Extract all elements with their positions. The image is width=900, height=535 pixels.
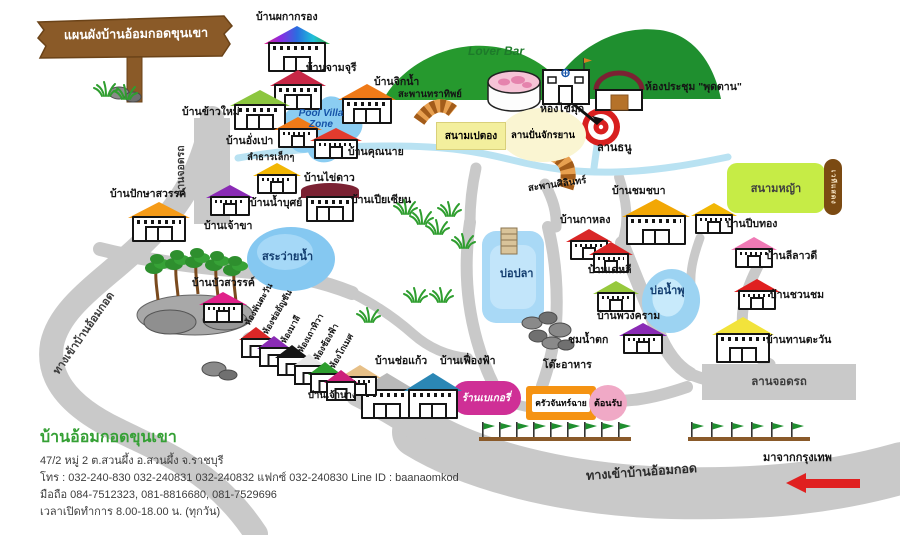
label-phakakrong: บ้านผกากรอง — [256, 12, 318, 24]
label-khunnai: บ้านคุณนาย — [348, 147, 404, 159]
reception-area: ต้อนรับ — [589, 385, 627, 421]
house-body — [203, 303, 243, 323]
label-piasian: บ้านเปียเซียน — [351, 195, 411, 207]
label-angpao: บ้านอั่งเปา — [226, 136, 273, 148]
house-body — [408, 389, 458, 419]
house-piasian — [308, 183, 352, 222]
resort-address: 47/2 หมู่ 2 ต.สวนผึ้ง อ.สวนผึ้ง จ.ราชบุร… — [40, 453, 459, 470]
label-leelawadee: บ้านลีลาวดี — [766, 251, 817, 263]
bakery-shop: ร้านเบเกอรี่ — [451, 381, 521, 415]
label-kalong: บ้านกาหลง — [560, 215, 610, 227]
spa-tub-icon — [488, 71, 540, 111]
house-buasawan — [205, 292, 241, 323]
label-archery: ลานธนู — [597, 142, 632, 154]
label-petanque: สนามเปตอง — [445, 129, 497, 144]
label-kitchen: ครัวจันทร์ฉาย — [532, 394, 590, 412]
parking-lot-right: ลานจอดรถ — [702, 364, 856, 400]
label-chomchaba: บ้านชมชบา — [612, 186, 665, 198]
label-paksasawan: บ้านปักษาสวรรค์ — [110, 189, 186, 201]
label-lover-bar: Lover Bar — [468, 44, 524, 58]
bike-area: ลานปั่นจักรยาน — [500, 108, 586, 162]
stage-area: เวทีแสดง — [824, 159, 842, 215]
label-parking-right: ลานจอดรถ — [751, 373, 807, 391]
house-body — [626, 215, 686, 245]
label-parking-left: ลานจอดรถ — [176, 121, 188, 221]
label-bridge-north: สะพานทราทิพย์ — [398, 90, 462, 100]
contact-info: บ้านอ้อมกอดขุนเขา 47/2 หมู่ 2 ต.สวนผึ้ง … — [40, 426, 459, 521]
house-body — [623, 334, 663, 354]
label-peebthong: บ้านปีบทอง — [726, 219, 777, 231]
resort-phone: โทร : 032-240-830 032-240831 032-240832 … — [40, 470, 459, 487]
house-body — [597, 292, 635, 312]
label-pool-villa-zone: Pool Villa Zone — [288, 108, 354, 130]
house-jaokha — [212, 185, 248, 216]
label-bike-area: ลานปั่นจักรยาน — [511, 128, 575, 143]
label-fuangfa: บ้านเฟื่องฟ้า — [440, 356, 496, 368]
house-chomchaba — [628, 199, 684, 245]
label-jaokha: บ้านเจ้าขา — [204, 221, 252, 233]
label-jaonang: บ้านเจ้านาง — [308, 391, 356, 401]
label-chokaew: บ้านช่อแก้ว — [375, 356, 427, 368]
house-body — [716, 333, 770, 363]
house-reception — [625, 323, 661, 354]
label-puangkram: บ้านพวงคราม — [597, 311, 660, 323]
flags-row-icon — [479, 422, 810, 441]
label-lawn: สนามหญ้า — [751, 179, 801, 197]
label-bakery: ร้านเบเกอรี่ — [462, 391, 510, 406]
map-title-sign: แผนผังบ้านอ้อมกอดขุนเขา — [48, 22, 224, 45]
pearl-room-building — [543, 58, 592, 104]
resort-mobile: มือถือ 084-7512323, 081-8816680, 081-752… — [40, 487, 459, 504]
house-body — [234, 104, 286, 130]
label-chuanchom: บ้านชวนชม — [770, 290, 824, 302]
lawn-area: สนามหญ้า — [727, 163, 825, 213]
label-khaomai: บ้านข้าวใหม่ — [182, 107, 240, 119]
resort-name: บ้านอ้อมกอดขุนเขา — [40, 426, 459, 451]
label-khaidao: บ้านไข่ดาว — [304, 173, 355, 185]
house-khaidao — [259, 163, 295, 194]
label-waterfall-view: ชมน้ำตก — [568, 335, 608, 347]
house-body — [306, 196, 354, 222]
label-meeting-room: ห้องประชุม "พุดตาน" — [645, 82, 742, 94]
label-stage: เวทีแสดง — [828, 170, 839, 205]
house-body — [210, 196, 250, 216]
label-jamjuri: บ้านจามจุรี — [306, 63, 357, 75]
label-from-bangkok: มาจากกรุงเทพ — [763, 452, 832, 464]
label-dining-tables: โต๊ะอาหาร — [543, 360, 592, 372]
label-reception: ต้อนรับ — [594, 396, 622, 410]
resort-hours: เวลาเปิดทำการ 8.00-18.00 น. (ทุกวัน) — [40, 504, 459, 521]
label-fountain-pond: บ่อน้ำพุ — [650, 285, 685, 297]
house-body — [257, 174, 297, 194]
house-body — [278, 128, 318, 148]
house-puangkram — [599, 281, 633, 312]
bridge-north-icon — [419, 106, 453, 121]
house-chuanchom — [740, 279, 774, 310]
label-buasawan: บ้านบัวสวรรค์ — [192, 278, 255, 290]
label-jiknam: บ้านจิกน้ำ — [374, 77, 419, 89]
label-dehli: บ้านเดหลี — [588, 265, 632, 277]
house-khaomai — [236, 90, 284, 130]
resort-map: แผนผังบ้านอ้อมกอดขุนเขา ลานจอดรถ Lover B… — [0, 0, 900, 535]
label-small-stream: ลำธารเล็กๆ — [247, 153, 294, 163]
house-tantawan — [718, 317, 768, 363]
label-pearl-room: ห้องไข่มุก — [540, 104, 584, 116]
label-fish-pond: บ่อปลา — [500, 268, 534, 280]
kitchen-building: ครัวจันทร์ฉาย — [526, 386, 596, 420]
petanque-court: สนามเปตอง — [436, 122, 506, 150]
label-nambut: บ้านน้ำบุศย์ — [250, 198, 302, 210]
label-swim-pond: สระว่ายน้ำ — [262, 251, 313, 263]
label-tantawan: บ้านทานตะวัน — [766, 335, 831, 347]
house-fuangfa — [410, 373, 456, 419]
